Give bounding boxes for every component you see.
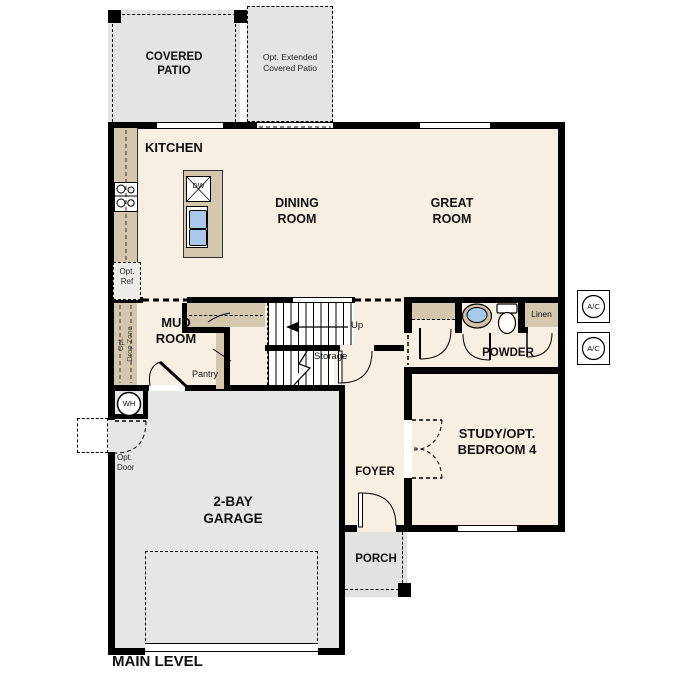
vanity-sink-icon [463, 304, 492, 328]
label-study: STUDY/OPT. BEDROOM 4 [432, 426, 562, 459]
up-arrow-icon [286, 322, 298, 332]
label-mud-room: MUD ROOM [137, 315, 215, 348]
label-extended-patio: Opt. Extended Covered Patio [247, 52, 333, 73]
door-arc [420, 329, 451, 359]
door-arc [149, 362, 160, 386]
label-dining-room: DINING ROOM [257, 196, 337, 227]
label-ac-1: A/C [577, 302, 610, 311]
label-great-room: GREAT ROOM [412, 196, 492, 227]
label-foyer: FOYER [347, 465, 403, 479]
label-dw: DW [186, 183, 211, 192]
label-wh: WH [117, 399, 141, 408]
label-garage: 2-BAY GARAGE [173, 494, 293, 528]
floor-plan: COVERED PATIO Opt. Extended Covered Pati… [0, 0, 687, 687]
label-pantry: Pantry [186, 369, 224, 380]
entry-door-leaf [359, 493, 363, 527]
door-arc [362, 493, 396, 526]
break-line [294, 351, 310, 385]
label-ac-2: A/C [577, 344, 610, 353]
label-linen: Linen [525, 309, 558, 320]
label-opt-door: Opt. Door [117, 453, 151, 473]
label-porch: PORCH [349, 552, 403, 566]
opt-door-arc [115, 421, 146, 453]
label-opt-ref: Opt. Ref [113, 267, 141, 287]
label-covered-patio: COVERED PATIO [112, 50, 236, 79]
label-opt-drop-zone-text: Opt. Drop Zone [116, 303, 136, 385]
label-storage: Storage [314, 351, 358, 363]
door-leaf [160, 362, 186, 386]
label-opt-drop-zone: Opt. Drop Zone [114, 303, 137, 385]
label-kitchen: KITCHEN [145, 140, 225, 156]
label-powder: POWDER [478, 346, 538, 360]
toilet-icon [497, 304, 517, 334]
label-up: Up [351, 320, 371, 332]
page-title: MAIN LEVEL [112, 653, 262, 672]
